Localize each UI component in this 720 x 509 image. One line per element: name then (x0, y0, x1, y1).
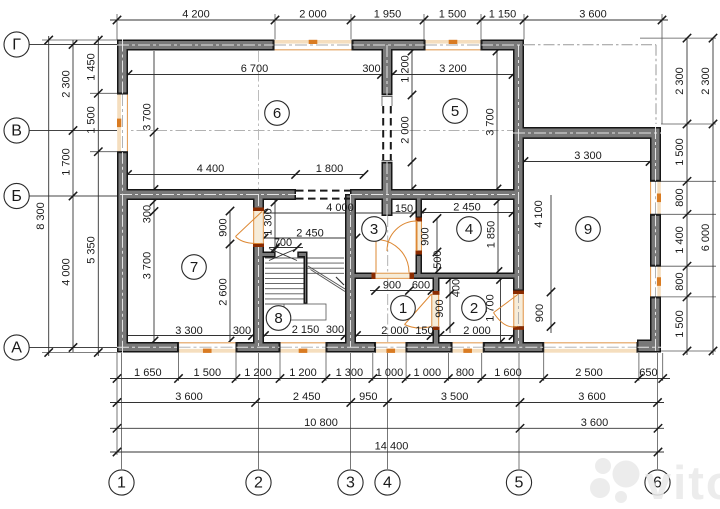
svg-text:1 850: 1 850 (486, 221, 498, 249)
svg-text:5 350: 5 350 (86, 236, 98, 264)
svg-text:150: 150 (395, 203, 413, 215)
svg-text:Г: Г (12, 37, 21, 54)
svg-text:4: 4 (383, 475, 392, 492)
svg-text:5: 5 (451, 103, 459, 120)
svg-text:1 150: 1 150 (489, 8, 517, 20)
svg-text:4 000: 4 000 (61, 258, 73, 286)
svg-text:900: 900 (434, 299, 446, 317)
svg-text:4 200: 4 200 (182, 8, 210, 20)
svg-text:1 300: 1 300 (336, 367, 364, 379)
svg-text:950: 950 (359, 391, 377, 403)
svg-text:3 700: 3 700 (485, 108, 497, 136)
svg-text:1 300: 1 300 (263, 208, 275, 236)
svg-text:900: 900 (383, 280, 401, 292)
svg-text:vito: vito (645, 456, 720, 509)
svg-text:9: 9 (584, 221, 592, 238)
svg-text:5: 5 (515, 475, 524, 492)
svg-text:2 000: 2 000 (381, 325, 409, 337)
svg-text:1 600: 1 600 (494, 367, 522, 379)
svg-text:650: 650 (639, 367, 657, 379)
svg-text:2 450: 2 450 (293, 391, 321, 403)
svg-text:700: 700 (274, 237, 292, 249)
svg-text:300: 300 (326, 324, 344, 336)
svg-text:7: 7 (190, 259, 198, 276)
svg-text:В: В (11, 123, 22, 140)
svg-text:2 300: 2 300 (61, 70, 73, 98)
svg-text:1 500: 1 500 (439, 8, 467, 20)
svg-text:1 950: 1 950 (374, 8, 402, 20)
svg-text:900: 900 (534, 304, 546, 322)
svg-text:1: 1 (117, 475, 126, 492)
svg-text:2: 2 (254, 475, 263, 492)
svg-text:8 300: 8 300 (35, 202, 47, 230)
svg-text:3 600: 3 600 (578, 391, 606, 403)
svg-text:800: 800 (456, 367, 474, 379)
svg-text:600: 600 (412, 280, 430, 292)
svg-text:1: 1 (399, 300, 407, 317)
svg-text:1 500: 1 500 (674, 138, 686, 166)
svg-text:1 200: 1 200 (289, 367, 317, 379)
svg-text:2 450: 2 450 (453, 202, 481, 214)
svg-text:2 000: 2 000 (299, 8, 327, 20)
svg-text:1 400: 1 400 (674, 226, 686, 254)
svg-text:150: 150 (415, 325, 433, 337)
svg-text:3 600: 3 600 (579, 8, 607, 20)
svg-text:2 300: 2 300 (700, 67, 712, 95)
svg-text:3 700: 3 700 (142, 252, 154, 280)
svg-text:1 700: 1 700 (61, 148, 73, 176)
svg-text:6 700: 6 700 (241, 63, 269, 75)
svg-text:6 000: 6 000 (700, 224, 712, 252)
svg-text:800: 800 (674, 272, 686, 290)
svg-text:1 200: 1 200 (244, 367, 272, 379)
svg-text:А: А (11, 340, 22, 357)
svg-text:6: 6 (273, 105, 281, 122)
svg-text:900: 900 (420, 227, 432, 245)
svg-text:2 600: 2 600 (218, 278, 230, 306)
svg-text:3 600: 3 600 (581, 417, 609, 429)
svg-text:3 300: 3 300 (175, 325, 203, 337)
svg-text:2: 2 (470, 300, 478, 317)
svg-text:1 200: 1 200 (400, 55, 412, 83)
svg-text:3 300: 3 300 (574, 150, 602, 162)
svg-text:2 000: 2 000 (400, 116, 412, 144)
svg-text:1 650: 1 650 (134, 367, 162, 379)
svg-text:300: 300 (233, 325, 251, 337)
svg-text:4: 4 (465, 221, 473, 238)
svg-text:300: 300 (142, 205, 154, 223)
svg-text:1 500: 1 500 (674, 310, 686, 338)
svg-text:14 400: 14 400 (375, 441, 409, 453)
svg-text:4 400: 4 400 (197, 163, 225, 175)
svg-text:3 200: 3 200 (439, 63, 467, 75)
svg-text:4 100: 4 100 (533, 200, 545, 228)
svg-text:500: 500 (432, 250, 444, 268)
svg-text:3 500: 3 500 (441, 391, 469, 403)
svg-text:2 150: 2 150 (292, 324, 320, 336)
svg-text:1 450: 1 450 (86, 53, 98, 81)
svg-text:2 300: 2 300 (674, 67, 686, 95)
svg-text:900: 900 (218, 218, 230, 236)
svg-text:1 000: 1 000 (414, 367, 442, 379)
svg-text:3 600: 3 600 (175, 391, 203, 403)
svg-text:3: 3 (346, 475, 355, 492)
svg-text:300: 300 (362, 63, 380, 75)
svg-text:2 500: 2 500 (575, 367, 603, 379)
svg-text:3 700: 3 700 (142, 103, 154, 131)
svg-text:1 500: 1 500 (86, 106, 98, 134)
svg-text:1 500: 1 500 (194, 367, 222, 379)
svg-text:2 000: 2 000 (463, 325, 491, 337)
svg-text:400: 400 (451, 279, 463, 297)
svg-text:800: 800 (674, 188, 686, 206)
svg-text:4 000: 4 000 (326, 202, 354, 214)
svg-text:10 800: 10 800 (304, 417, 338, 429)
svg-text:8: 8 (274, 310, 282, 327)
svg-text:1 800: 1 800 (316, 163, 344, 175)
svg-text:1 000: 1 000 (376, 367, 404, 379)
svg-text:2 450: 2 450 (296, 228, 324, 240)
svg-text:3: 3 (370, 221, 378, 238)
svg-text:Б: Б (11, 188, 22, 205)
